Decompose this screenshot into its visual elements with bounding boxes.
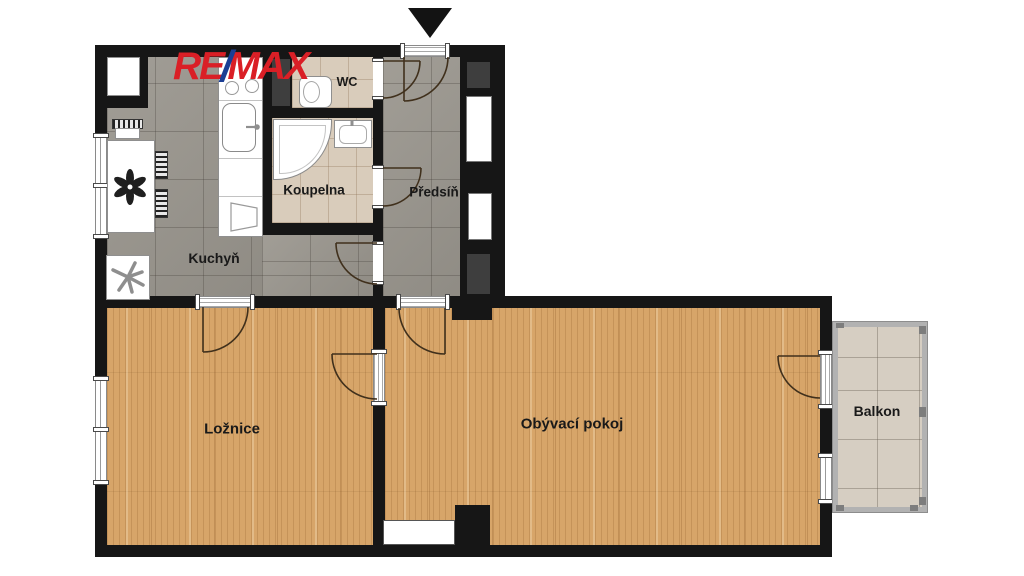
room-label-bedroom: Ložnice (204, 421, 260, 438)
entrance-door-cap-left (400, 43, 405, 59)
dining-chair-right-2 (155, 189, 168, 218)
bathroom-door-cap-top (372, 165, 384, 169)
wall-separator-c (448, 296, 832, 308)
bedroom-window-cap-bottom (93, 480, 109, 485)
wall-right-living-c (820, 502, 832, 557)
room-label-hall: Předsíň (409, 185, 459, 200)
room-label-kitchen: Kuchyň (188, 250, 239, 266)
bedroom-living-door-opening (373, 351, 385, 403)
balcony-door-cap-top (818, 350, 834, 355)
wall-right-living-b (820, 407, 832, 455)
bedroom-living-door-cap-bottom (371, 401, 387, 406)
wall-bottom-block (455, 505, 490, 547)
bedroom-door-cap-left (195, 294, 200, 310)
hall-closet-niche-1 (466, 96, 492, 162)
kitchen-floor-lower (262, 235, 373, 297)
utility-shaft-top (465, 60, 492, 90)
kitchen-door-opening (373, 243, 383, 283)
balcony-post (919, 497, 926, 505)
balcony-post (919, 407, 926, 417)
remax-logo-slash: / (220, 42, 230, 91)
wc-door-opening (373, 60, 383, 98)
floor-plan: RE/MAX Kuchyň WC Koupelna Předsíň Ložnic… (0, 0, 1024, 576)
room-label-wc: WC (337, 75, 358, 89)
wall-closet-stub-v (140, 57, 148, 96)
kitchen-window-cap-top (93, 133, 109, 138)
wall-wc-bathroom (262, 108, 383, 118)
bathroom-door-opening (373, 167, 383, 207)
wc-door-cap-bottom (372, 96, 384, 100)
wall-right-living-a (820, 296, 832, 352)
balcony-post (919, 326, 926, 334)
kitchen-sink (222, 103, 256, 152)
room-label-living-room: Obývací pokoj (521, 416, 624, 433)
entrance-door-cap-right (445, 43, 450, 59)
living-room-window-cap-top (818, 453, 834, 458)
bedroom-door-cap-right (250, 294, 255, 310)
dining-chair-seat (115, 128, 140, 139)
living-room-door-cap-right (445, 294, 450, 310)
kitchen-door-cap-top (372, 241, 384, 245)
entrance-door-threshold (402, 45, 448, 57)
counter-divider (219, 158, 262, 159)
kitchen-window-cap-bottom (93, 234, 109, 239)
balcony-post (836, 323, 844, 328)
dining-chair-right-1 (155, 151, 168, 179)
wall-hall-b (373, 98, 383, 167)
utility-shaft-bottom (465, 252, 492, 296)
bedroom-door-opening (197, 296, 253, 308)
hall-floor (383, 57, 462, 297)
wall-living-protrusion (452, 296, 492, 320)
room-label-balcony: Balkon (854, 403, 901, 419)
balcony-post (836, 505, 844, 511)
living-room-window (820, 455, 832, 502)
balcony-door-opening (820, 352, 832, 407)
balcony-door-cap-bottom (818, 404, 834, 409)
bedroom-living-door-cap-top (371, 349, 387, 354)
counter-divider (219, 196, 262, 197)
wall-hall-c (373, 207, 383, 243)
wall-closet-stub-h (95, 96, 148, 108)
living-room-window-glass (825, 457, 826, 500)
bathroom-door-cap-bottom (372, 205, 384, 209)
wall-separator-b (253, 296, 398, 308)
wall-bathroom-bottom (262, 223, 383, 235)
living-room-door-cap-left (396, 294, 401, 310)
entrance-arrow-icon (408, 8, 452, 38)
washbasin-bowl (339, 125, 367, 144)
remax-logo-re: RE (173, 45, 223, 88)
kitchen-appliance-box (106, 255, 150, 300)
living-room-window-cap-bottom (818, 499, 834, 504)
kitchen-door-cap-bottom (372, 281, 384, 285)
counter-divider (219, 100, 262, 101)
wc-door-cap-top (372, 58, 384, 62)
kitchen-corner-closet (107, 57, 140, 96)
bedroom-window-cap-mid (93, 427, 109, 432)
living-room-door-opening (398, 296, 448, 308)
remax-logo: RE/MAX (173, 48, 308, 84)
living-room-niche (383, 520, 455, 545)
wall-bedroom-living-a (373, 308, 385, 351)
wall-hall-d (373, 283, 383, 297)
hall-closet-niche-2 (468, 193, 492, 240)
balcony-post (910, 505, 918, 511)
dining-table (107, 140, 155, 233)
bedroom-window-cap-top (93, 376, 109, 381)
remax-logo-max: MAX (227, 45, 308, 88)
room-label-bathroom: Koupelna (283, 183, 345, 198)
